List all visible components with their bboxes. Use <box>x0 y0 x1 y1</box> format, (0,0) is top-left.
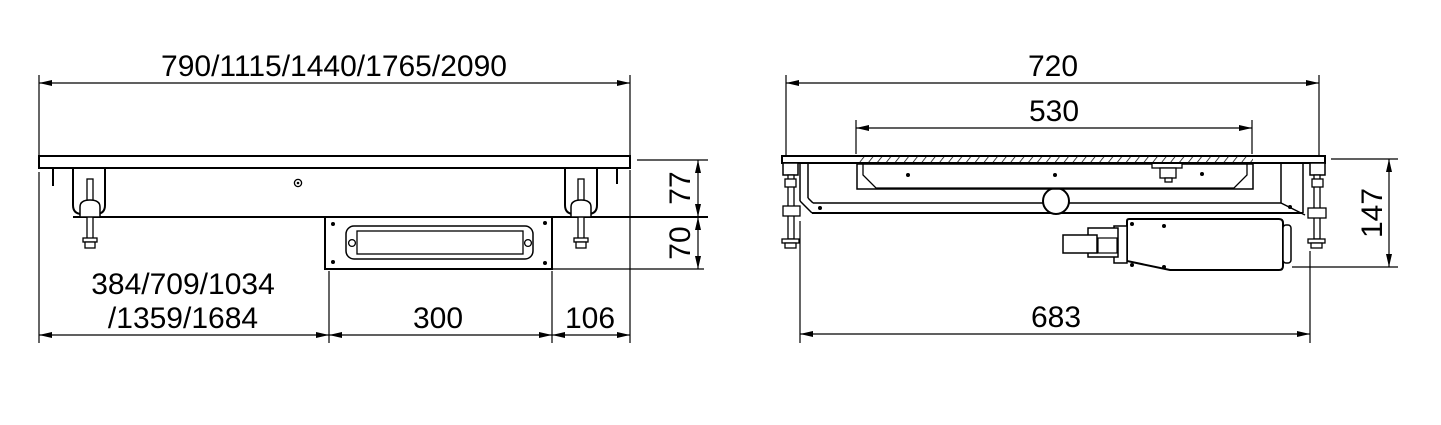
side-left-lip <box>783 163 798 175</box>
side-motor-box <box>1127 219 1283 270</box>
front-counter-plate <box>39 156 630 168</box>
side-left-clamp-nut <box>785 179 796 187</box>
front-box-screw-dot <box>331 260 335 264</box>
front-junction-box <box>325 217 552 269</box>
front-center-screw-dot <box>297 182 300 185</box>
side-box-screw-dot <box>1130 263 1134 267</box>
side-box-end-cap <box>1283 225 1291 263</box>
side-right-screw-head <box>1311 243 1322 248</box>
front-right-clamp-knob <box>571 200 591 217</box>
side-box-screw-dot <box>1162 224 1166 228</box>
side-left-screw-head <box>785 243 796 248</box>
side-box-screw-dot <box>1130 222 1134 226</box>
front-left-screw-head <box>85 242 95 248</box>
side-sensor-tip <box>1165 178 1172 182</box>
side-tray-dot <box>1200 172 1204 176</box>
front-box-screw-dot <box>543 261 547 265</box>
front-view: 790/1115/1440/1765/2090 77 70 384/709/10… <box>39 50 708 343</box>
side-right-clamp-nut <box>1312 179 1323 187</box>
dim-label-side-opening: 530 <box>1029 95 1079 128</box>
dim-label-front-left-span-line2: /1359/1684 <box>108 302 258 335</box>
side-view: 720 530 147 683 <box>782 50 1398 343</box>
side-tray-dot <box>1053 173 1057 177</box>
dim-label-side-height: 147 <box>1356 188 1389 238</box>
side-left-clamp-foot <box>783 206 800 216</box>
side-right-lip <box>1310 163 1325 175</box>
front-box-screw-dot <box>543 221 547 225</box>
side-tub-corner-dot-left <box>818 206 822 210</box>
dim-label-front-drain-box: 300 <box>413 302 463 335</box>
side-tub-left-chamfer <box>800 201 812 213</box>
side-grille-hatch <box>856 157 1253 162</box>
side-plug-connector <box>1063 235 1097 253</box>
side-box-screw-dot <box>1162 265 1166 269</box>
dim-label-front-widths: 790/1115/1440/1765/2090 <box>161 50 507 83</box>
technical-drawing-canvas: 790/1115/1440/1765/2090 77 70 384/709/10… <box>0 0 1441 425</box>
front-left-clamp-knob <box>80 200 100 217</box>
dim-label-side-width: 720 <box>1028 50 1078 83</box>
drop-in-unit-dimension-drawing: 790/1115/1440/1765/2090 77 70 384/709/10… <box>0 0 1441 425</box>
dim-label-front-right-offset: 106 <box>565 302 615 335</box>
side-tray-dot <box>906 173 910 177</box>
side-tub-corner-dot-right <box>1288 205 1292 209</box>
side-drain-boss <box>1043 188 1069 214</box>
dim-label-front-left-span-line1: 384/709/1034 <box>91 268 275 301</box>
front-right-screw-head <box>576 242 586 248</box>
dim-label-front-depth-upper: 77 <box>664 171 697 204</box>
side-tub-left-chamfer-inner <box>808 198 813 203</box>
front-box-screw-dot <box>331 222 335 226</box>
dim-label-front-depth-lower: 70 <box>664 226 697 259</box>
dim-label-side-body: 683 <box>1031 301 1081 334</box>
side-sensor-body <box>1160 168 1176 178</box>
side-right-clamp-foot <box>1308 208 1326 218</box>
